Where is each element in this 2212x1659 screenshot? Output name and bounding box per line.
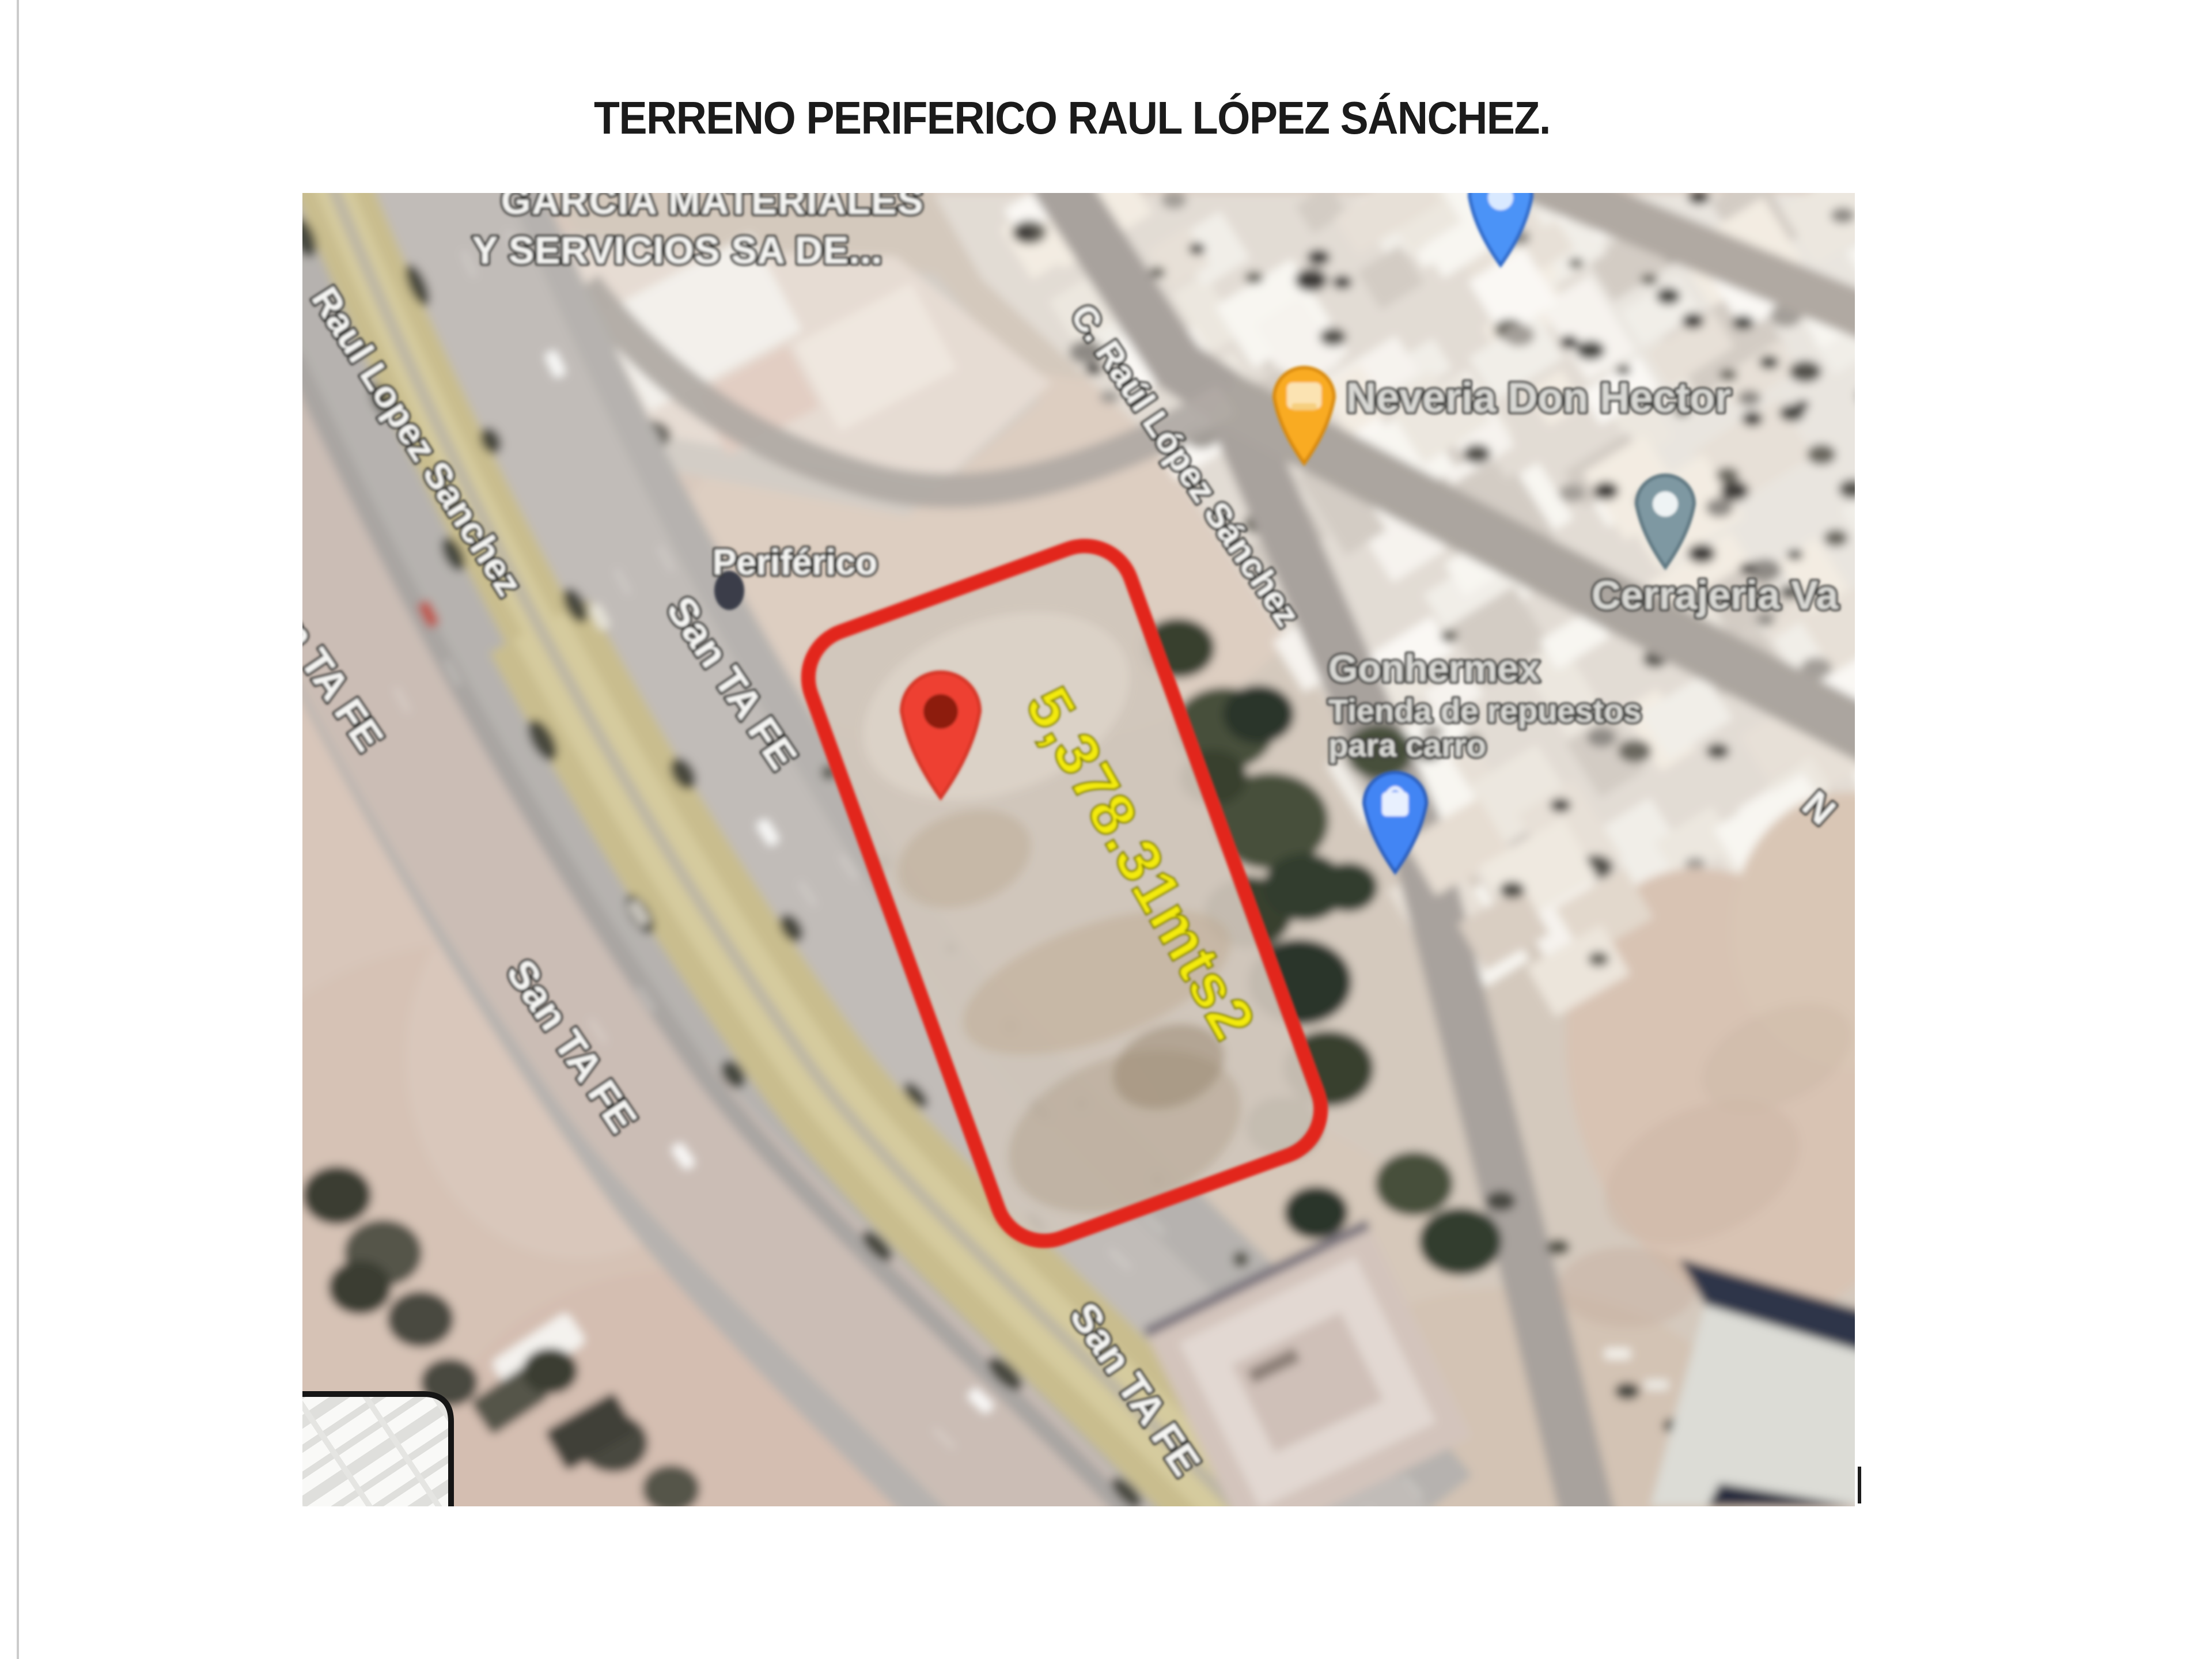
svg-text:Neveria Don Hector: Neveria Don Hector bbox=[1346, 375, 1731, 421]
svg-text:Periférico: Periférico bbox=[713, 543, 877, 582]
svg-text:GARCIA MATERIALES: GARCIA MATERIALES bbox=[501, 193, 924, 222]
svg-text:Gonhermex: Gonhermex bbox=[1328, 647, 1540, 690]
svg-text:Tienda de repuestos: Tienda de repuestos bbox=[1328, 692, 1642, 729]
svg-text:Cerrajeria Va: Cerrajeria Va bbox=[1592, 573, 1839, 618]
svg-text:Y SERVICIOS SA DE...: Y SERVICIOS SA DE... bbox=[472, 229, 882, 271]
svg-text:para carro: para carro bbox=[1328, 727, 1486, 763]
